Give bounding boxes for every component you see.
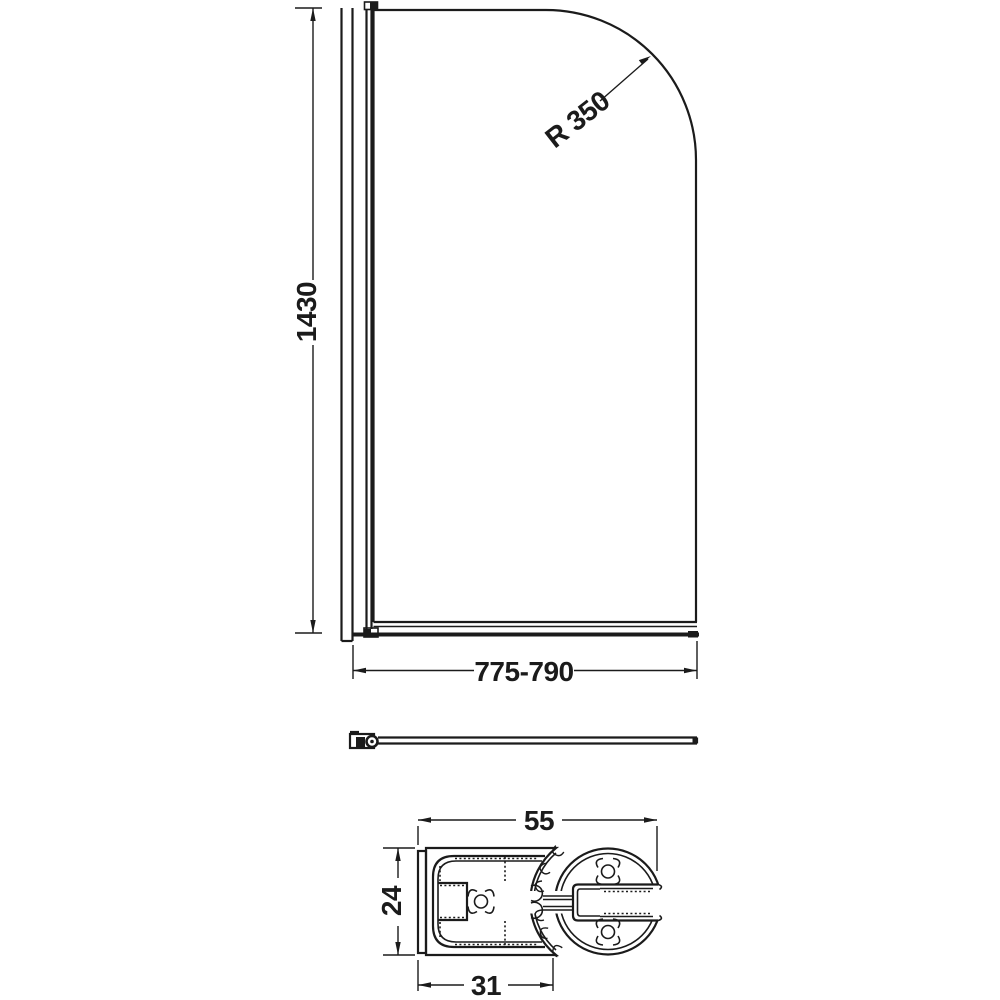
radius-dimension: R 350 (539, 56, 651, 154)
height-dimension: 1430 (291, 8, 322, 633)
section-height-dimension: 24 (376, 848, 415, 955)
pivot-profile (364, 2, 378, 637)
barrel-clip-top (596, 859, 619, 885)
barrel-clip-bottom (596, 919, 619, 945)
plan-hinge-bracket (350, 732, 378, 748)
wall-profile (342, 8, 353, 641)
front-view: 1430 R 350 775-790 (291, 2, 699, 687)
radius-dimension-label: R 350 (539, 85, 615, 154)
section-height-label: 24 (376, 885, 407, 916)
height-dimension-label: 1430 (291, 282, 322, 342)
glass-panel (374, 10, 697, 622)
section-channel-label: 31 (471, 970, 501, 1000)
plan-glass-bar (378, 738, 697, 744)
boss-clip (468, 890, 494, 913)
section-view: 55 24 31 (376, 805, 664, 1000)
section-width-label: 55 (524, 805, 554, 836)
plan-view (350, 732, 697, 748)
bath-screen-drawing: 1430 R 350 775-790 (0, 0, 1000, 1000)
width-dimension-label: 775-790 (474, 656, 573, 687)
width-dimension: 775-790 (353, 641, 697, 687)
section-channel-dimension: 31 (418, 958, 553, 1000)
bottom-rail (353, 622, 699, 638)
technical-drawing-canvas: 1430 R 350 775-790 (0, 0, 1000, 1000)
